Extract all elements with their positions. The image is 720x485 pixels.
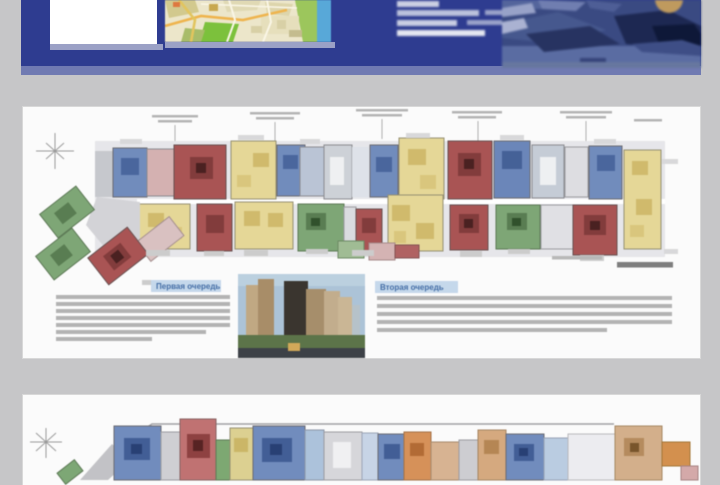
svg-text:Вторая очередь: Вторая очередь [380, 283, 444, 292]
svg-text:Первая очередь: Первая очередь [156, 282, 220, 291]
